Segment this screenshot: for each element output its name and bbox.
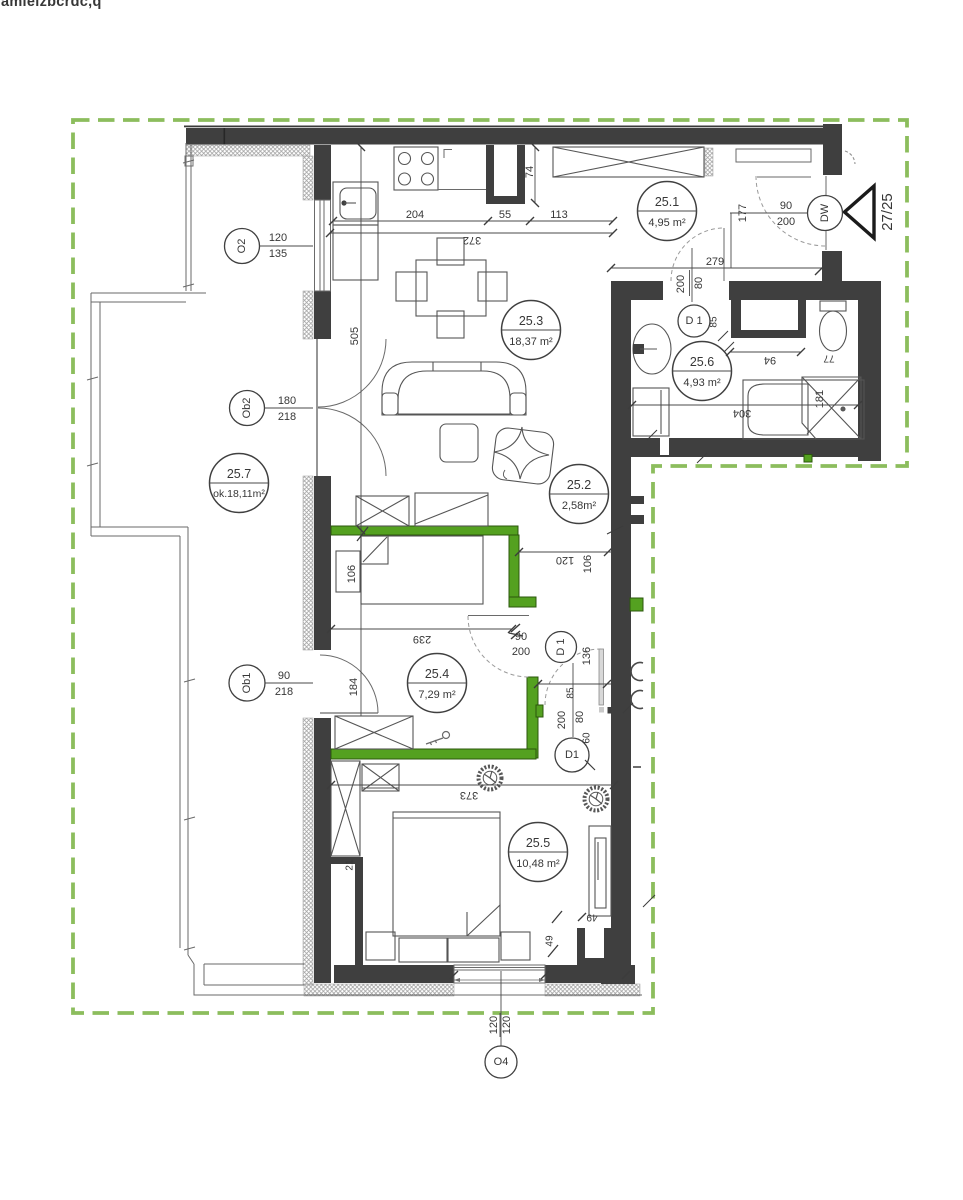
svg-text:25.1: 25.1 — [655, 195, 679, 209]
svg-text:180: 180 — [278, 395, 296, 407]
svg-text:279: 279 — [706, 256, 724, 268]
svg-text:27/25: 27/25 — [879, 193, 896, 231]
svg-text:49: 49 — [586, 911, 598, 922]
svg-text:239: 239 — [413, 633, 431, 645]
svg-text:ok.18,11m²: ok.18,11m² — [213, 488, 265, 500]
svg-text:25.4: 25.4 — [425, 667, 449, 681]
svg-text:60: 60 — [582, 732, 593, 744]
svg-text:D 1: D 1 — [555, 638, 567, 655]
svg-text:77: 77 — [823, 352, 835, 363]
svg-text:4,95 m²: 4,95 m² — [648, 217, 686, 229]
svg-text:80: 80 — [693, 277, 705, 289]
svg-text:304: 304 — [733, 407, 751, 419]
svg-text:200: 200 — [512, 646, 530, 658]
svg-text:372: 372 — [463, 234, 481, 246]
svg-text:D1: D1 — [565, 749, 579, 761]
svg-text:O4: O4 — [494, 1056, 509, 1068]
svg-text:4,93 m²: 4,93 m² — [683, 377, 721, 389]
svg-text:D 1: D 1 — [685, 315, 702, 327]
svg-text:21: 21 — [345, 859, 356, 871]
svg-text:218: 218 — [278, 411, 296, 423]
svg-text:177: 177 — [737, 204, 749, 222]
svg-text:120: 120 — [269, 232, 287, 244]
svg-text:Ob1: Ob1 — [241, 673, 253, 694]
svg-text:218: 218 — [275, 686, 293, 698]
svg-text:Ob2: Ob2 — [241, 398, 253, 419]
svg-text:90: 90 — [515, 631, 527, 643]
svg-text:10,48 m²: 10,48 m² — [516, 858, 560, 870]
svg-text:25.3: 25.3 — [519, 314, 543, 328]
svg-text:85: 85 — [709, 316, 720, 328]
svg-text:136: 136 — [581, 647, 593, 665]
svg-text:80: 80 — [574, 711, 586, 723]
svg-text:amlelzbcrdc,q: amlelzbcrdc,q — [1, 0, 102, 10]
svg-text:373: 373 — [460, 789, 478, 801]
svg-text:200: 200 — [556, 711, 568, 729]
svg-text:85: 85 — [566, 687, 577, 699]
svg-text:106: 106 — [582, 555, 594, 573]
svg-text:120: 120 — [488, 1016, 500, 1034]
svg-text:49: 49 — [545, 935, 556, 947]
svg-text:135: 135 — [269, 248, 287, 260]
svg-text:94: 94 — [764, 354, 776, 366]
svg-text:O2: O2 — [236, 239, 248, 254]
svg-text:7,29 m²: 7,29 m² — [418, 689, 456, 701]
svg-text:113: 113 — [550, 209, 568, 221]
svg-text:200: 200 — [675, 275, 687, 293]
svg-text:2,58m²: 2,58m² — [562, 500, 597, 512]
svg-text:DW: DW — [819, 203, 831, 222]
svg-text:25.7: 25.7 — [227, 467, 251, 481]
svg-text:505: 505 — [349, 327, 361, 345]
svg-text:120: 120 — [556, 554, 574, 566]
svg-text:204: 204 — [406, 209, 424, 221]
svg-text:120: 120 — [501, 1016, 513, 1034]
svg-text:74: 74 — [524, 166, 536, 178]
svg-text:90: 90 — [278, 670, 290, 682]
svg-text:200: 200 — [777, 216, 795, 228]
svg-text:25.5: 25.5 — [526, 836, 550, 850]
svg-text:25.6: 25.6 — [690, 355, 714, 369]
svg-text:181: 181 — [814, 390, 826, 408]
svg-text:106: 106 — [346, 565, 358, 583]
svg-text:25.2: 25.2 — [567, 478, 591, 492]
svg-text:18,37 m²: 18,37 m² — [509, 336, 553, 348]
svg-text:90: 90 — [780, 200, 792, 212]
svg-text:55: 55 — [499, 209, 511, 221]
svg-text:184: 184 — [348, 678, 360, 696]
